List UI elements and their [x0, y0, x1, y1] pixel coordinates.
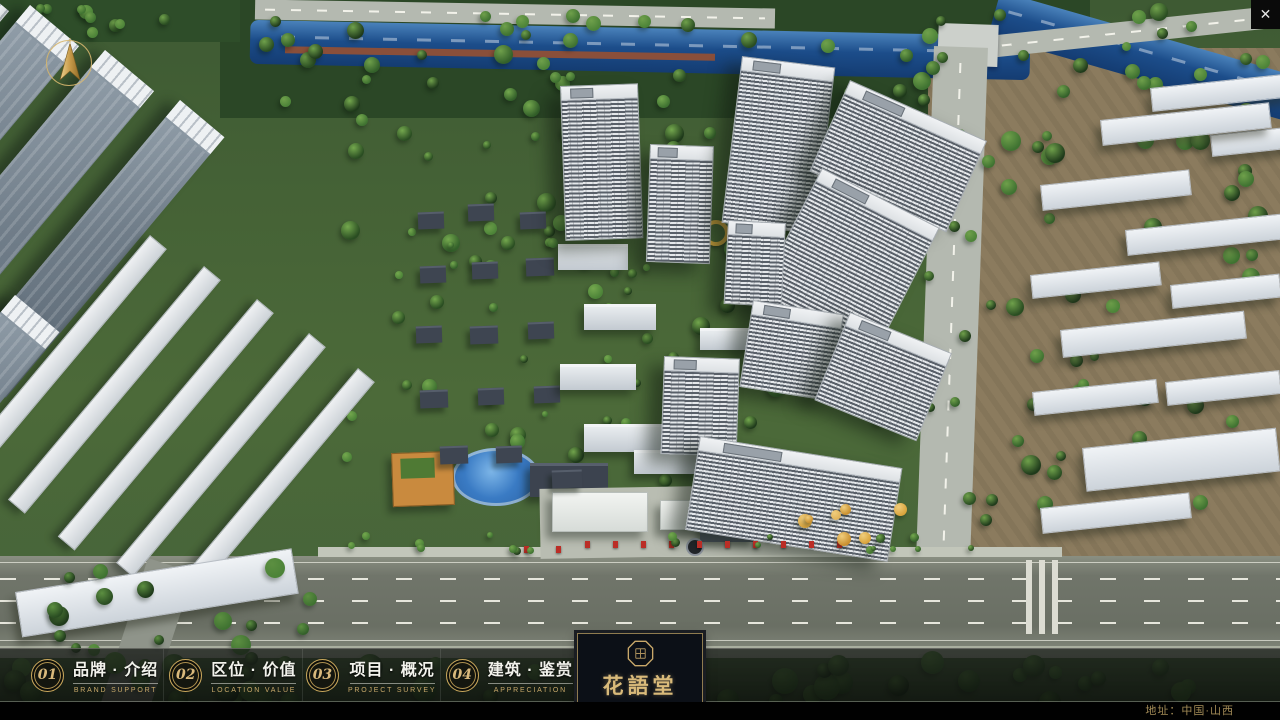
- nav-text: 区位 · 价值 LOCATION VALUE: [211, 656, 296, 694]
- tree: [840, 504, 851, 515]
- seal-icon: [627, 640, 654, 667]
- app-window: ✕ 01 品牌 · 介绍 BRAND SUPPORT 02 区位 · 价值 LO…: [0, 0, 1280, 720]
- nav-text: 品牌 · 介绍 BRAND SUPPORT: [73, 656, 158, 694]
- tree: [47, 602, 63, 618]
- tree: [509, 545, 517, 553]
- masterplan-3d-view[interactable]: [0, 0, 1280, 720]
- nav-group-left: 01 品牌 · 介绍 BRAND SUPPORT 02 区位 · 价值 LOCA…: [0, 649, 578, 701]
- tree: [668, 532, 677, 541]
- close-button[interactable]: ✕: [1251, 0, 1280, 29]
- nav-label: 建筑 · 鉴赏: [488, 656, 573, 684]
- nav-text: 项目 · 概况 PROJECT SURVEY: [348, 656, 436, 694]
- tree: [265, 558, 285, 578]
- tree: [910, 533, 919, 542]
- nav-number-badge: 02: [169, 659, 202, 692]
- nav-number-badge: 03: [306, 659, 339, 692]
- tree: [755, 542, 761, 548]
- nav-subtitle: BRAND SUPPORT: [74, 687, 158, 694]
- nav-label: 项目 · 概况: [350, 656, 435, 684]
- tree: [767, 534, 773, 540]
- project-logo-title: 花語堂: [603, 670, 678, 700]
- tree: [64, 572, 75, 583]
- trees-front-layer: [0, 0, 1280, 720]
- tree: [362, 532, 370, 540]
- nav-number-badge: 01: [31, 659, 64, 692]
- bottom-strip: 地址：中国·山西: [0, 702, 1280, 720]
- tree: [968, 545, 974, 551]
- nav-item-brand[interactable]: 01 品牌 · 介绍 BRAND SUPPORT: [26, 649, 163, 701]
- project-address: 地址：中国·山西: [1145, 702, 1234, 718]
- nav-item-project[interactable]: 03 项目 · 概况 PROJECT SURVEY: [302, 649, 440, 701]
- tree: [876, 534, 885, 543]
- nav-subtitle: LOCATION VALUE: [211, 687, 296, 694]
- nav-subtitle: PROJECT SURVEY: [348, 687, 436, 694]
- nav-number-badge: 04: [446, 659, 479, 692]
- tree: [915, 546, 921, 552]
- tree: [487, 532, 493, 538]
- nav-label: 区位 · 价值: [211, 656, 296, 684]
- tree: [214, 612, 232, 630]
- tree: [805, 515, 813, 523]
- tree: [96, 588, 113, 605]
- tree: [894, 503, 907, 516]
- tree: [93, 564, 108, 579]
- tree: [837, 532, 851, 546]
- tree: [859, 532, 871, 544]
- nav-label: 品牌 · 介绍: [73, 656, 158, 684]
- tree: [417, 544, 425, 552]
- nav-item-architecture[interactable]: 04 建筑 · 鉴赏 APPRECIATION: [440, 649, 578, 701]
- tree: [831, 510, 841, 520]
- tree: [246, 620, 257, 631]
- tree: [54, 630, 66, 642]
- tree: [348, 542, 355, 549]
- tree: [871, 546, 876, 551]
- compass: [42, 36, 98, 92]
- tree: [303, 592, 317, 606]
- nav-subtitle: APPRECIATION: [494, 687, 567, 694]
- nav-text: 建筑 · 鉴赏 APPRECIATION: [488, 656, 573, 694]
- tree: [890, 546, 896, 552]
- project-logo-panel[interactable]: 花語堂: [577, 633, 703, 713]
- tree: [527, 547, 534, 554]
- nav-item-location[interactable]: 02 区位 · 价值 LOCATION VALUE: [163, 649, 301, 701]
- tree: [297, 623, 309, 635]
- compass-needle-icon: [42, 36, 98, 92]
- tree: [137, 581, 154, 598]
- tree: [154, 635, 164, 645]
